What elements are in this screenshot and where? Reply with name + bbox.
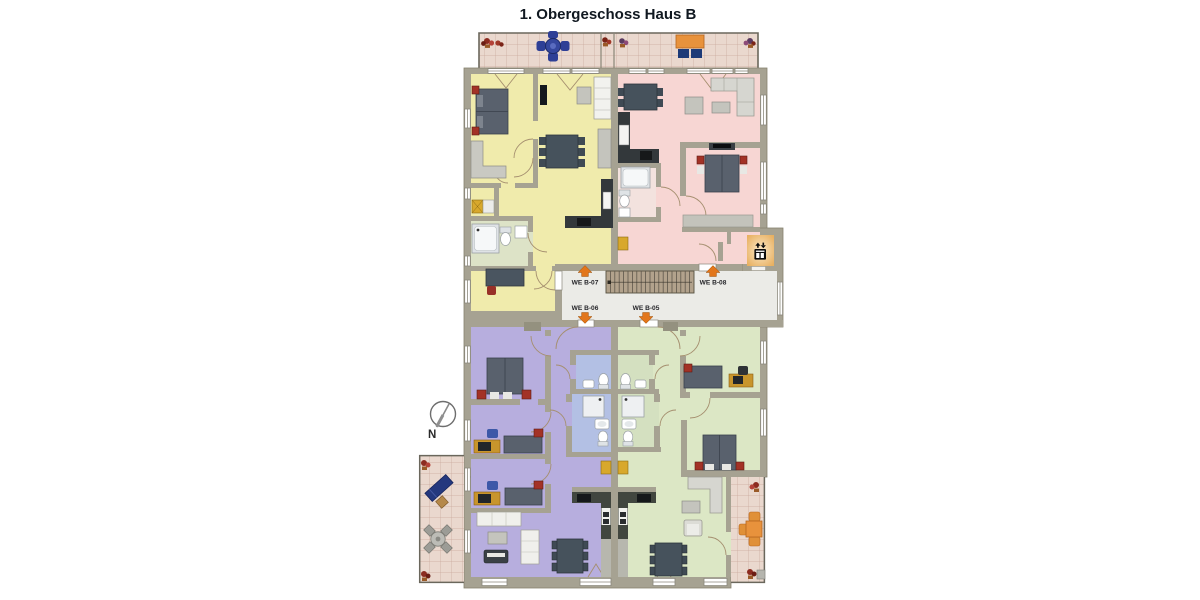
svg-text:WE B-06: WE B-06 — [572, 305, 599, 312]
svg-text:WE B-05: WE B-05 — [633, 305, 660, 312]
svg-text:WE B-08: WE B-08 — [700, 280, 727, 287]
svg-text:N: N — [428, 429, 436, 441]
svg-text:1. Obergeschoss Haus B: 1. Obergeschoss Haus B — [520, 6, 697, 23]
svg-text:WE B-07: WE B-07 — [572, 280, 599, 287]
